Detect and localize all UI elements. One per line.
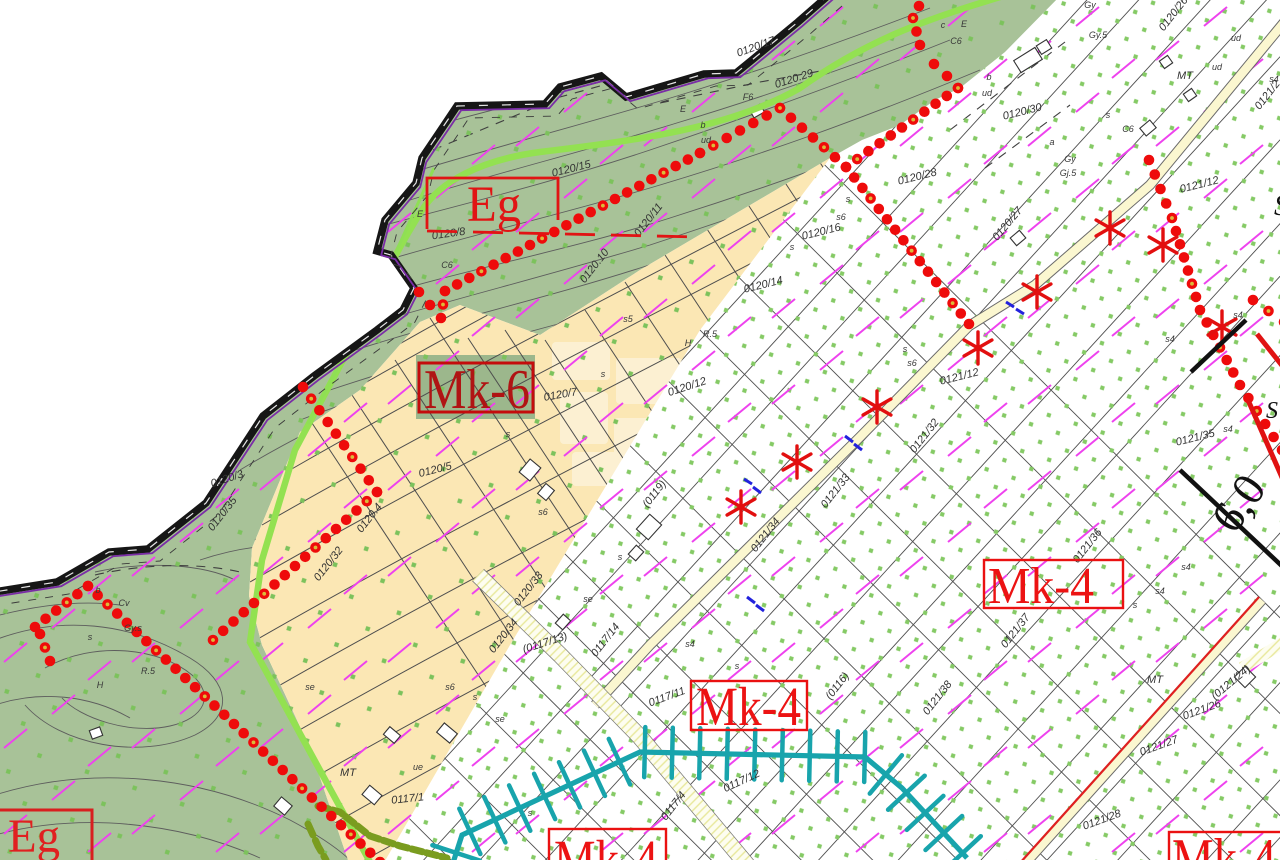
svg-text:ue: ue bbox=[413, 762, 423, 772]
svg-text:H: H bbox=[97, 680, 104, 690]
svg-text:s: s bbox=[506, 429, 511, 439]
svg-text:b: b bbox=[700, 120, 705, 130]
svg-text:s: s bbox=[1106, 110, 1111, 120]
svg-text:Eg: Eg bbox=[467, 177, 521, 233]
svg-text:Gy: Gy bbox=[1064, 154, 1076, 164]
svg-text:E: E bbox=[961, 19, 968, 29]
svg-text:R.5: R.5 bbox=[141, 666, 156, 676]
svg-text:s4: s4 bbox=[685, 639, 695, 649]
svg-text:E: E bbox=[417, 209, 424, 219]
svg-text:b: b bbox=[986, 72, 991, 82]
svg-text:C6: C6 bbox=[950, 36, 962, 46]
svg-text:s4: s4 bbox=[1165, 334, 1175, 344]
svg-text:Gj.5: Gj.5 bbox=[1060, 168, 1078, 178]
svg-text:Cv: Cv bbox=[119, 598, 130, 608]
svg-text:E: E bbox=[680, 104, 687, 114]
svg-text:ud: ud bbox=[982, 88, 993, 98]
svg-text:s4: s4 bbox=[1223, 424, 1233, 434]
svg-text:s6: s6 bbox=[538, 507, 548, 517]
svg-text:s4: s4 bbox=[1233, 310, 1243, 320]
svg-text:ud: ud bbox=[1231, 33, 1242, 43]
svg-text:MT: MT bbox=[340, 767, 357, 779]
svg-text:s: s bbox=[528, 808, 533, 818]
svg-text:se: se bbox=[583, 594, 593, 604]
svg-text:Mk-6: Mk-6 bbox=[424, 359, 530, 421]
svg-text:Eg: Eg bbox=[8, 810, 60, 860]
svg-text:se: se bbox=[495, 714, 505, 724]
svg-text:s: s bbox=[1133, 600, 1138, 610]
svg-text:Mk-4: Mk-4 bbox=[988, 558, 1094, 615]
svg-text:Gy.5: Gy.5 bbox=[1089, 30, 1108, 40]
svg-text:Gy: Gy bbox=[1084, 0, 1096, 10]
svg-text:s6: s6 bbox=[445, 682, 455, 692]
svg-text:C6: C6 bbox=[1122, 124, 1134, 134]
svg-text:C6: C6 bbox=[441, 260, 453, 270]
svg-text:s: s bbox=[88, 632, 93, 642]
svg-text:Mk-4: Mk-4 bbox=[554, 829, 658, 860]
svg-text:s6: s6 bbox=[836, 212, 846, 222]
svg-text:s: s bbox=[846, 194, 851, 204]
svg-text:a: a bbox=[1049, 137, 1054, 147]
svg-text:H: H bbox=[685, 338, 692, 348]
svg-text:s6: s6 bbox=[907, 358, 917, 368]
svg-text:s: s bbox=[601, 369, 606, 379]
svg-text:s5: s5 bbox=[623, 314, 634, 324]
svg-text:MT: MT bbox=[1147, 674, 1164, 686]
svg-text:s: s bbox=[790, 242, 795, 252]
svg-text:ud: ud bbox=[1212, 62, 1223, 72]
svg-text:Mk-4: Mk-4 bbox=[1172, 828, 1276, 860]
svg-text:b: b bbox=[95, 585, 100, 595]
svg-text:s: s bbox=[735, 661, 740, 671]
svg-text:s4: s4 bbox=[1269, 74, 1279, 84]
svg-text:Gy.s: Gy.s bbox=[124, 623, 142, 633]
svg-text:c: c bbox=[941, 20, 946, 30]
svg-text:S: S bbox=[1266, 398, 1278, 424]
svg-text:R.5: R.5 bbox=[703, 329, 718, 339]
svg-text:MT: MT bbox=[1177, 70, 1194, 82]
svg-text:F6: F6 bbox=[743, 92, 754, 102]
svg-text:s: s bbox=[473, 692, 478, 702]
svg-text:s4: s4 bbox=[1181, 562, 1191, 572]
svg-text:s: s bbox=[903, 344, 908, 354]
svg-text:s: s bbox=[618, 552, 623, 562]
svg-text:ud: ud bbox=[701, 135, 712, 145]
svg-text:Mk-4: Mk-4 bbox=[696, 676, 801, 737]
svg-text:se: se bbox=[305, 682, 315, 692]
svg-text:S: S bbox=[1274, 189, 1280, 222]
svg-text:s4: s4 bbox=[1155, 586, 1165, 596]
